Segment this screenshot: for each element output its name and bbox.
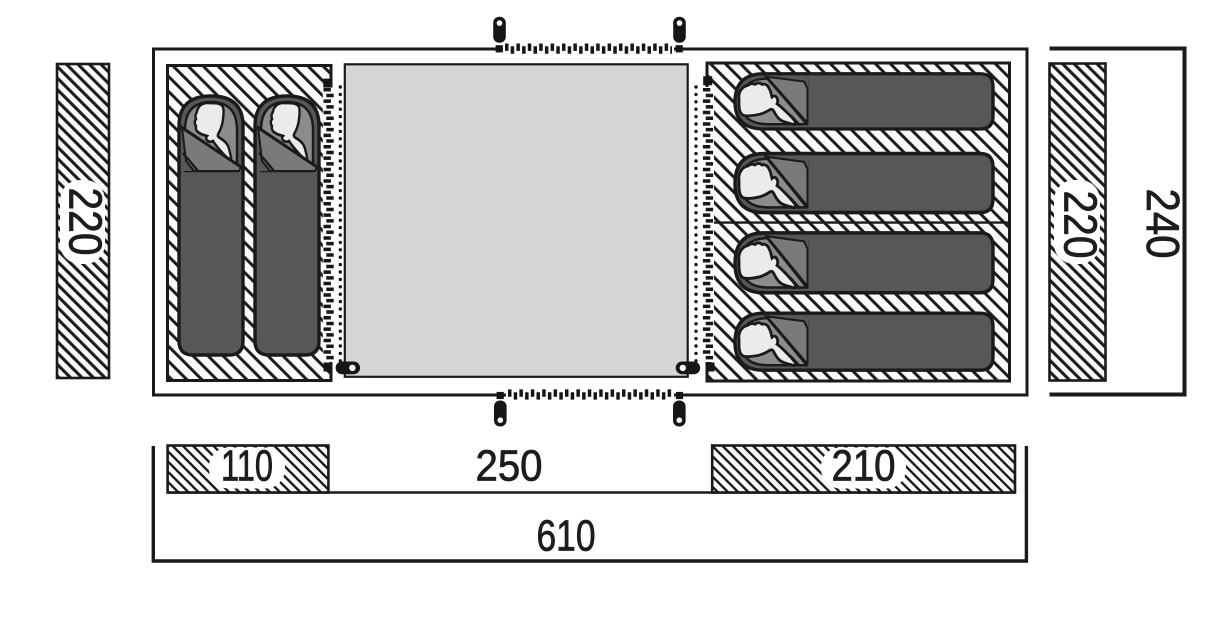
svg-text:240: 240 <box>1137 189 1189 259</box>
svg-text:110: 110 <box>221 443 273 491</box>
svg-text:610: 610 <box>537 513 596 561</box>
svg-text:250: 250 <box>476 443 543 491</box>
svg-text:210: 210 <box>832 443 896 491</box>
svg-text:220: 220 <box>1055 191 1107 259</box>
svg-text:220: 220 <box>60 188 112 256</box>
